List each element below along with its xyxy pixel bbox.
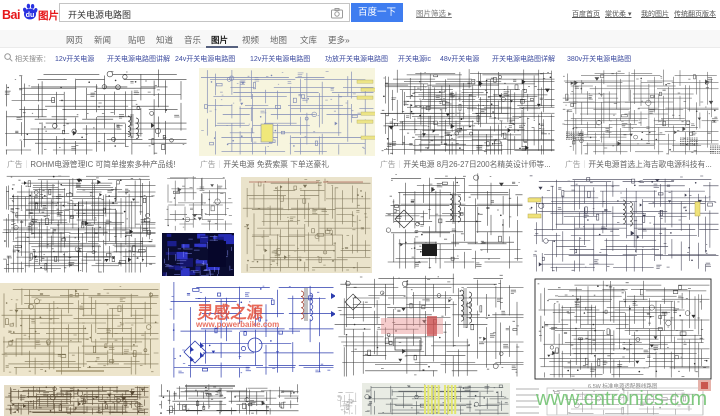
svg-text:www.powerbaike.com: www.powerbaike.com [195,320,279,329]
svg-text:du: du [26,11,35,19]
svg-text:灵感之源: 灵感之源 [197,302,264,322]
